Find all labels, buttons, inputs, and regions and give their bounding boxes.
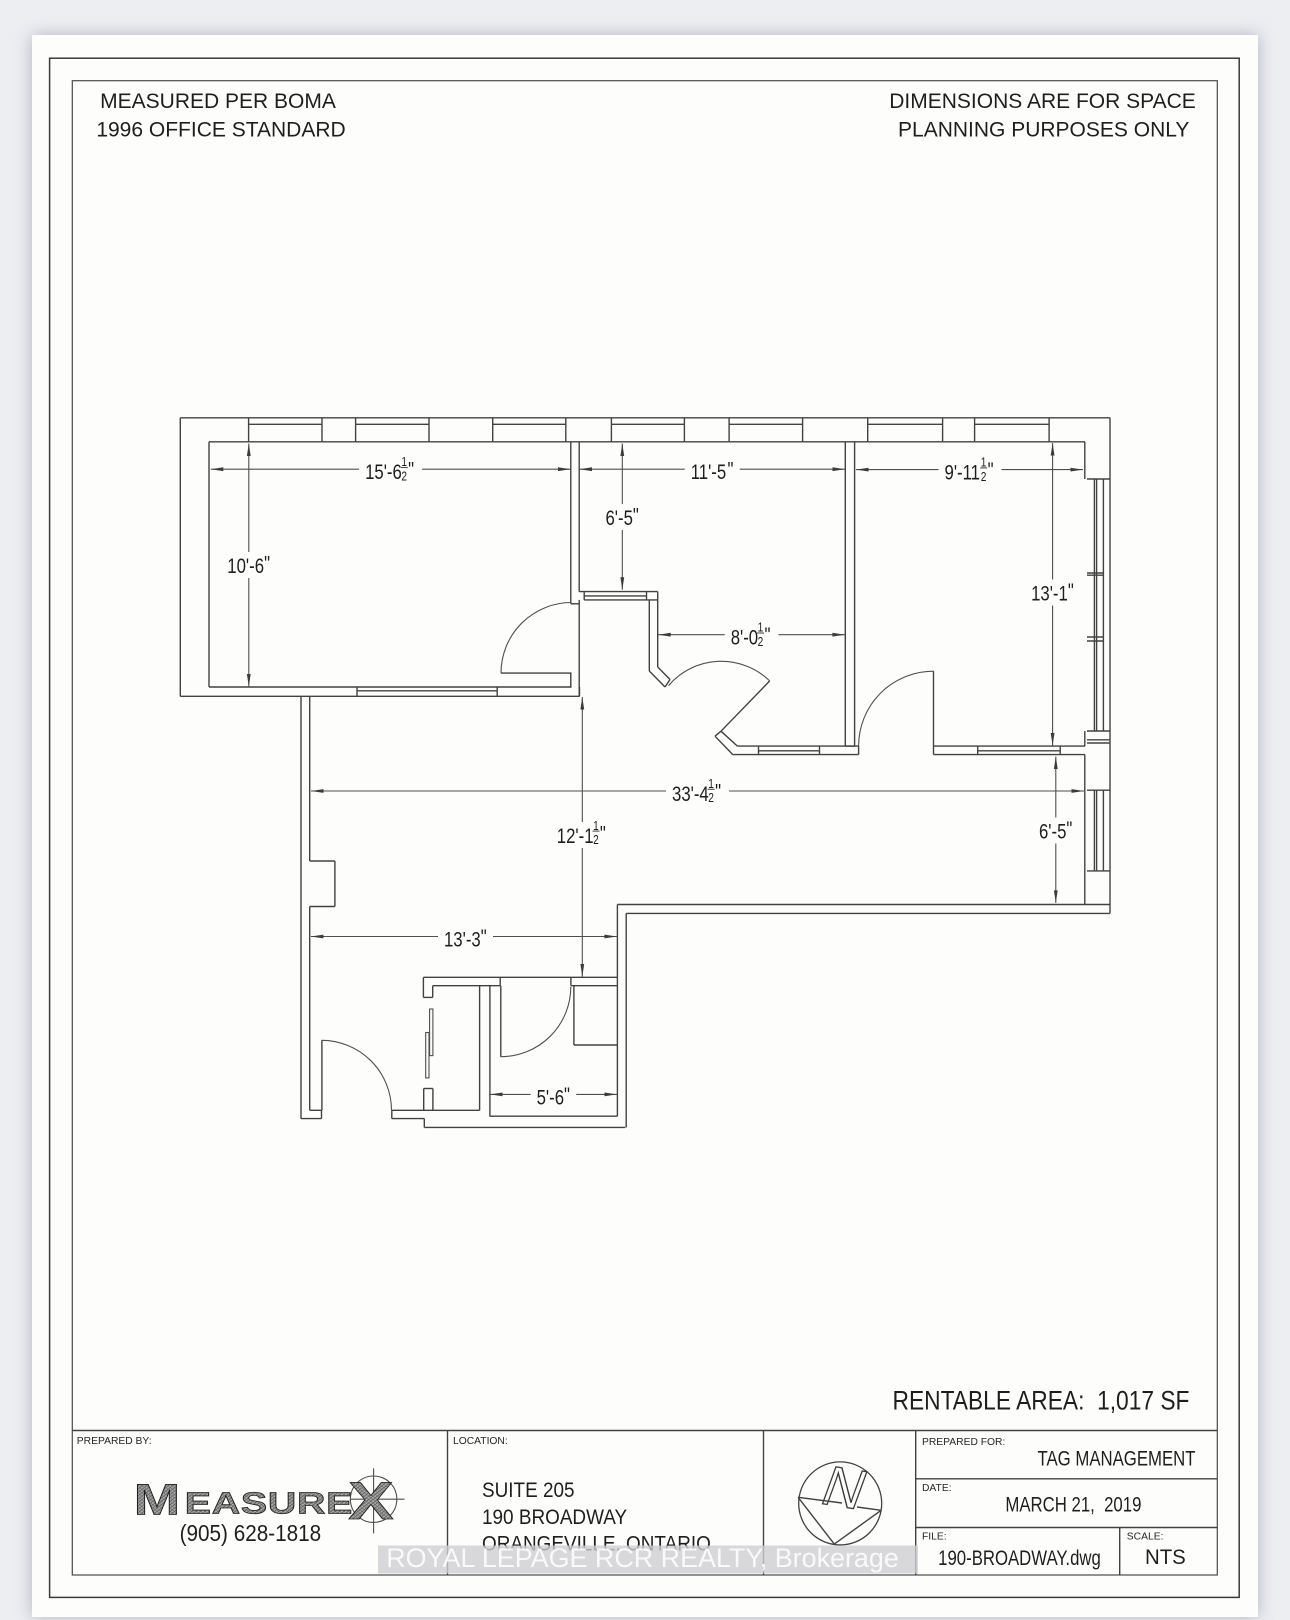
svg-text:1996 OFFICE STANDARD: 1996 OFFICE STANDARD: [96, 118, 345, 141]
svg-text:X: X: [348, 1471, 394, 1530]
svg-text:2: 2: [708, 791, 714, 805]
svg-text:2: 2: [593, 833, 599, 847]
svg-text:TAG MANAGEMENT: TAG MANAGEMENT: [1038, 1448, 1196, 1471]
svg-text:ROYAL LEPAGE RCR REALTY, Broke: ROYAL LEPAGE RCR REALTY, Brokerage: [386, 1543, 899, 1573]
svg-text:": ": [728, 459, 734, 482]
svg-text:": ": [264, 552, 270, 575]
svg-text:(905) 628-1818: (905) 628-1818: [180, 1520, 322, 1546]
svg-text:M: M: [134, 1476, 180, 1525]
svg-text:190-BROADWAY.dwg: 190-BROADWAY.dwg: [938, 1547, 1101, 1570]
svg-text:11'-5: 11'-5: [691, 461, 726, 484]
svg-text:6'-5: 6'-5: [606, 507, 633, 530]
svg-text:": ": [408, 459, 414, 482]
svg-text:N: N: [814, 1455, 876, 1521]
svg-text:": ": [988, 459, 994, 482]
svg-text:13'-1: 13'-1: [1031, 582, 1068, 605]
svg-text:DATE:: DATE:: [922, 1483, 952, 1494]
svg-text:": ": [1068, 580, 1074, 603]
svg-text:": ": [481, 926, 487, 949]
svg-text:RENTABLE AREA: 1,017 SF: RENTABLE AREA: 1,017 SF: [893, 1386, 1190, 1416]
svg-text:190 BROADWAY: 190 BROADWAY: [482, 1506, 628, 1529]
svg-text:PREPARED FOR:: PREPARED FOR:: [922, 1437, 1005, 1448]
svg-text:15'-6: 15'-6: [365, 461, 402, 484]
svg-text:MEASURED PER BOMA: MEASURED PER BOMA: [100, 90, 336, 113]
svg-text:": ": [715, 781, 721, 804]
svg-text:6'-5: 6'-5: [1039, 820, 1066, 843]
svg-text:": ": [1066, 818, 1072, 841]
svg-text:": ": [600, 822, 606, 845]
svg-text:PLANNING PURPOSES ONLY: PLANNING PURPOSES ONLY: [898, 118, 1189, 141]
svg-text:2: 2: [401, 469, 407, 483]
svg-text:5'-6: 5'-6: [537, 1087, 564, 1110]
svg-text:2: 2: [758, 635, 764, 649]
svg-text:MARCH 21, 2019: MARCH 21, 2019: [1005, 1494, 1141, 1517]
svg-text:33'-4: 33'-4: [672, 783, 709, 806]
svg-text:SCALE:: SCALE:: [1127, 1532, 1164, 1543]
svg-text:8'-0: 8'-0: [731, 627, 758, 650]
svg-text:LOCATION:: LOCATION:: [453, 1436, 508, 1447]
svg-text:": ": [633, 504, 639, 527]
svg-text:EASURE: EASURE: [185, 1487, 353, 1521]
svg-text:12'-1: 12'-1: [557, 825, 594, 848]
svg-text:NTS: NTS: [1145, 1546, 1186, 1570]
svg-text:DIMENSIONS ARE FOR SPACE: DIMENSIONS ARE FOR SPACE: [889, 90, 1196, 113]
svg-text:FILE:: FILE:: [922, 1532, 947, 1543]
svg-text:2: 2: [981, 470, 987, 484]
svg-text:SUITE 205: SUITE 205: [482, 1479, 575, 1502]
svg-text:PREPARED BY:: PREPARED BY:: [77, 1436, 152, 1447]
svg-text:": ": [564, 1084, 570, 1107]
svg-text:9'-11: 9'-11: [944, 462, 979, 485]
svg-text:13'-3: 13'-3: [444, 929, 481, 952]
svg-text:": ": [764, 624, 770, 647]
svg-text:10'-6: 10'-6: [227, 555, 264, 578]
